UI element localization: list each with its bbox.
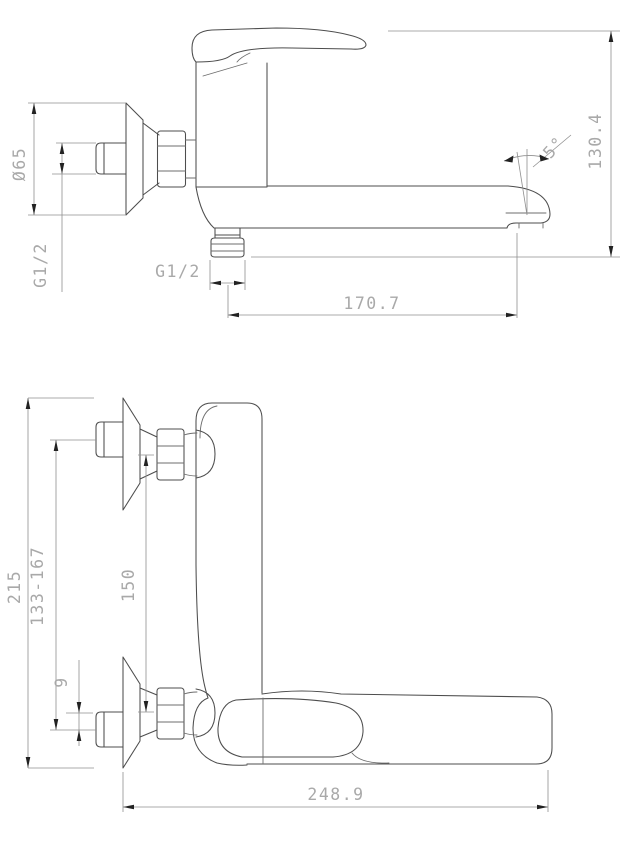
handle-outline [193,698,247,765]
drawing-page: Ø65 G1/2 G1/2 170.7 130.4 [0,0,634,861]
handle-crease-lines [203,53,250,76]
union-nut [158,131,186,187]
handle-outline [192,28,366,62]
arrowhead [210,281,221,286]
arrowhead [228,313,239,318]
arrowhead [32,204,37,215]
dim-spout-reach-label: 170.7 [343,294,400,313]
dim-inlet-range-label: 133-167 [28,546,47,626]
side-view-faucet-outline [96,28,550,257]
upper-union-nut-facets [157,433,197,476]
arrowhead [54,719,59,730]
body-outline [196,62,267,187]
arrowhead [144,455,149,466]
upper-ball-joint [196,430,215,478]
dim-overall-length-label: 248.9 [307,785,364,804]
dim-union-centers-label: 150 [119,568,138,602]
dim-inlet-thread-label: G1/2 [31,242,50,288]
handle-lever-top [218,699,363,757]
arrowhead [609,246,614,257]
lower-union-nut-facets [157,692,197,735]
side-view: Ø65 G1/2 G1/2 170.7 130.4 [10,28,620,318]
dim-overall-height-label: 130.4 [586,112,605,169]
inlet-stub [96,143,126,174]
arrowhead [60,143,65,154]
outlet-thread-lines [211,244,244,251]
outlet-stub [211,228,244,257]
spout-outline [196,186,550,228]
arrowhead [506,313,517,318]
lower-inlet-stub [96,712,123,747]
arrowhead [60,163,65,174]
plan-view: 215 133-167 150 9 248.9 [5,398,552,812]
union-nut-facets [158,140,197,178]
lower-ball-joint [196,689,215,737]
dim-outlet-thread-lines [210,260,245,318]
body-outline [196,403,262,698]
wall-flange [126,103,159,215]
arrowhead [26,398,31,409]
arrowhead [32,103,37,114]
dim-overall-depth-label: 215 [5,570,24,604]
lower-union-nut [157,688,184,739]
dim-outlet-thread-label: G1/2 [155,262,201,281]
dim-inlet-thread-lines [52,143,96,292]
arrowhead [504,156,514,163]
upper-union-nut [157,429,184,480]
dim-flange-diameter-lines [28,103,126,215]
arrowhead [537,805,548,810]
upper-inlet-stub [96,422,123,457]
arrowhead [77,730,82,741]
dim-flange-diameter-label: Ø65 [10,147,29,181]
dim-eccentric-offset-label: 9 [52,676,71,687]
handle-neck-line [352,753,389,763]
body-cap-seam [200,406,217,438]
arrowhead [123,805,134,810]
arrowhead [77,702,82,713]
arrowhead [26,757,31,768]
spout-outline [247,691,552,764]
faucet-technical-drawing: Ø65 G1/2 G1/2 170.7 130.4 [0,0,634,861]
arrowhead [609,31,614,42]
plan-view-faucet-outline [96,398,552,768]
lower-flange [123,657,157,768]
aerator-detail [506,213,546,228]
plan-view-dimensions: 215 133-167 150 9 248.9 [5,398,548,812]
arrowhead [144,701,149,712]
arrowhead [234,281,245,286]
dim-union-centers-lines [138,455,154,712]
upper-flange [123,398,157,510]
arrowhead [54,440,59,451]
